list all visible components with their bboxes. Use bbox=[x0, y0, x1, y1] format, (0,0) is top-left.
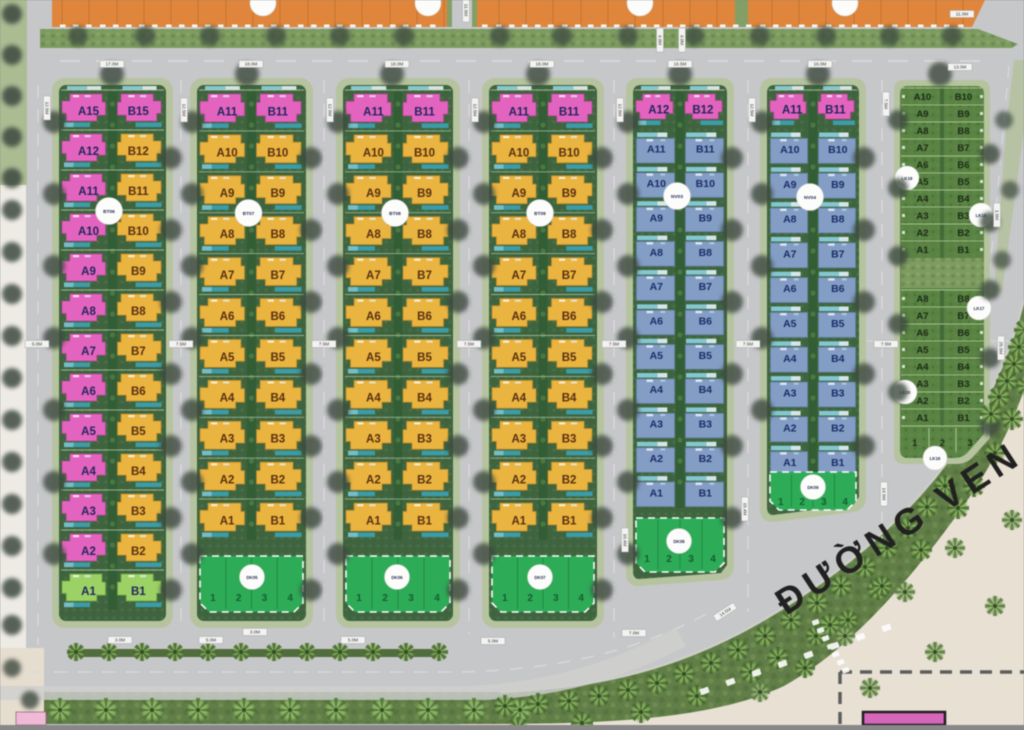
svg-text:1: 1 bbox=[644, 554, 650, 565]
svg-text:25.5M: 25.5M bbox=[998, 342, 1003, 355]
svg-text:1: 1 bbox=[210, 593, 216, 604]
svg-text:4: 4 bbox=[434, 593, 440, 604]
svg-text:4.0M: 4.0M bbox=[657, 35, 662, 45]
svg-text:B3: B3 bbox=[270, 434, 285, 446]
svg-text:A12: A12 bbox=[648, 105, 669, 117]
svg-text:B2: B2 bbox=[957, 228, 969, 239]
svg-text:B1: B1 bbox=[831, 457, 845, 469]
svg-text:B6: B6 bbox=[699, 316, 713, 328]
svg-text:3.0M: 3.0M bbox=[115, 638, 125, 643]
svg-text:3: 3 bbox=[553, 593, 559, 604]
svg-text:BT07: BT07 bbox=[243, 211, 255, 217]
svg-text:4: 4 bbox=[842, 497, 848, 508]
svg-text:B12: B12 bbox=[128, 146, 149, 158]
svg-text:7.5M: 7.5M bbox=[176, 342, 186, 347]
svg-text:5.0M: 5.0M bbox=[206, 638, 216, 643]
svg-text:16.5M: 16.5M bbox=[674, 62, 687, 67]
svg-text:10.4M: 10.4M bbox=[622, 534, 627, 547]
svg-text:A5: A5 bbox=[220, 352, 235, 364]
svg-text:14.5M: 14.5M bbox=[881, 488, 886, 501]
svg-text:7.0M: 7.0M bbox=[629, 631, 639, 636]
svg-text:B11: B11 bbox=[559, 106, 580, 118]
svg-text:A2: A2 bbox=[366, 475, 381, 487]
svg-text:1: 1 bbox=[502, 593, 508, 604]
svg-text:B1: B1 bbox=[699, 487, 713, 499]
svg-text:A7: A7 bbox=[650, 281, 664, 293]
svg-text:A6: A6 bbox=[511, 311, 526, 323]
svg-text:3: 3 bbox=[821, 497, 827, 508]
svg-text:2: 2 bbox=[236, 593, 242, 604]
svg-text:A12: A12 bbox=[78, 146, 99, 158]
svg-text:B6: B6 bbox=[831, 283, 845, 295]
svg-text:B7: B7 bbox=[699, 281, 713, 293]
svg-text:12.5M: 12.5M bbox=[617, 104, 622, 117]
svg-text:2: 2 bbox=[382, 593, 388, 604]
svg-text:1: 1 bbox=[912, 438, 917, 448]
svg-text:A1: A1 bbox=[366, 516, 381, 528]
svg-text:B3: B3 bbox=[417, 434, 432, 446]
svg-text:B10: B10 bbox=[414, 147, 435, 159]
svg-text:4: 4 bbox=[287, 593, 293, 604]
svg-text:18.0M: 18.0M bbox=[245, 62, 258, 67]
svg-text:A6: A6 bbox=[366, 311, 381, 323]
svg-text:B4: B4 bbox=[957, 362, 970, 373]
svg-text:A7: A7 bbox=[366, 270, 381, 282]
svg-text:11.0M: 11.0M bbox=[956, 12, 969, 17]
svg-text:18.0M: 18.0M bbox=[391, 62, 404, 67]
svg-text:A8: A8 bbox=[916, 294, 928, 305]
svg-text:A11: A11 bbox=[782, 105, 803, 117]
svg-text:A3: A3 bbox=[783, 388, 797, 400]
svg-text:B3: B3 bbox=[699, 419, 713, 431]
svg-text:A5: A5 bbox=[81, 426, 96, 438]
svg-text:B5: B5 bbox=[831, 318, 845, 330]
svg-text:B4: B4 bbox=[699, 384, 713, 396]
svg-text:5.0M: 5.0M bbox=[32, 342, 42, 347]
svg-text:A3: A3 bbox=[366, 434, 381, 446]
svg-text:7.5M: 7.5M bbox=[319, 342, 329, 347]
svg-text:B5: B5 bbox=[562, 352, 577, 364]
svg-text:1.5M: 1.5M bbox=[994, 210, 999, 220]
svg-text:A8: A8 bbox=[511, 229, 526, 241]
svg-text:4.0M: 4.0M bbox=[679, 35, 684, 45]
svg-text:B11: B11 bbox=[128, 186, 149, 198]
svg-text:A7: A7 bbox=[511, 270, 526, 282]
svg-text:A8: A8 bbox=[366, 229, 381, 241]
svg-text:B7: B7 bbox=[270, 270, 285, 282]
svg-text:A2: A2 bbox=[81, 546, 96, 558]
svg-text:B3: B3 bbox=[957, 211, 969, 222]
svg-text:B4: B4 bbox=[417, 393, 432, 405]
svg-text:A4: A4 bbox=[81, 466, 96, 478]
svg-text:18.0M: 18.0M bbox=[536, 62, 549, 67]
svg-text:A8: A8 bbox=[783, 214, 797, 226]
svg-text:A1: A1 bbox=[916, 413, 929, 424]
svg-text:17.0M: 17.0M bbox=[106, 62, 119, 67]
svg-text:B10: B10 bbox=[696, 178, 715, 190]
svg-text:B8: B8 bbox=[831, 214, 845, 226]
svg-text:A6: A6 bbox=[81, 386, 96, 398]
svg-text:B1: B1 bbox=[270, 516, 285, 528]
svg-text:12.5M: 12.5M bbox=[327, 104, 332, 117]
svg-text:A3: A3 bbox=[220, 434, 235, 446]
svg-text:2: 2 bbox=[799, 497, 805, 508]
svg-text:A9: A9 bbox=[783, 179, 797, 191]
svg-text:B9: B9 bbox=[957, 109, 969, 120]
svg-text:A11: A11 bbox=[78, 186, 99, 198]
svg-text:A5: A5 bbox=[783, 318, 797, 330]
svg-text:3.0M: 3.0M bbox=[250, 630, 260, 635]
svg-text:B9: B9 bbox=[131, 266, 146, 278]
svg-text:A10: A10 bbox=[217, 147, 238, 159]
svg-text:A7: A7 bbox=[783, 248, 797, 260]
svg-text:B2: B2 bbox=[562, 475, 577, 487]
svg-text:B10: B10 bbox=[559, 147, 580, 159]
svg-text:A1: A1 bbox=[916, 245, 929, 256]
svg-text:B7: B7 bbox=[562, 270, 577, 282]
svg-text:A15: A15 bbox=[78, 106, 100, 118]
svg-text:A1: A1 bbox=[81, 586, 96, 598]
svg-text:A2: A2 bbox=[783, 422, 797, 434]
svg-text:A5: A5 bbox=[650, 350, 664, 362]
svg-text:B2: B2 bbox=[417, 475, 432, 487]
svg-text:7.5M: 7.5M bbox=[743, 342, 753, 347]
svg-text:A6: A6 bbox=[220, 311, 235, 323]
svg-text:A7: A7 bbox=[220, 270, 235, 282]
svg-text:B3: B3 bbox=[562, 434, 577, 446]
svg-text:3: 3 bbox=[262, 593, 268, 604]
svg-text:B5: B5 bbox=[270, 352, 285, 364]
svg-text:B8: B8 bbox=[270, 229, 285, 241]
svg-text:B1: B1 bbox=[957, 413, 970, 424]
svg-text:A4: A4 bbox=[511, 393, 526, 405]
svg-text:B6: B6 bbox=[131, 386, 146, 398]
svg-text:12.5M: 12.5M bbox=[749, 104, 754, 117]
svg-text:B9: B9 bbox=[699, 212, 713, 224]
svg-text:B10: B10 bbox=[828, 144, 847, 156]
svg-text:A3: A3 bbox=[81, 506, 96, 518]
svg-text:A4: A4 bbox=[366, 393, 381, 405]
svg-text:DK09: DK09 bbox=[807, 485, 819, 490]
svg-text:NV03: NV03 bbox=[671, 194, 683, 200]
svg-text:A9: A9 bbox=[916, 109, 928, 120]
svg-text:A6: A6 bbox=[916, 328, 928, 339]
svg-text:12.5M: 12.5M bbox=[181, 104, 186, 117]
svg-text:B2: B2 bbox=[270, 475, 285, 487]
svg-text:12.5M: 12.5M bbox=[472, 104, 477, 117]
svg-text:A4: A4 bbox=[220, 393, 235, 405]
svg-text:A3: A3 bbox=[916, 379, 928, 390]
svg-text:B4: B4 bbox=[562, 393, 577, 405]
svg-text:B8: B8 bbox=[562, 229, 577, 241]
svg-text:B3: B3 bbox=[957, 379, 969, 390]
svg-text:B7: B7 bbox=[831, 248, 845, 260]
svg-text:B5: B5 bbox=[957, 345, 970, 356]
svg-text:B5: B5 bbox=[131, 426, 146, 438]
svg-text:DK07: DK07 bbox=[534, 575, 546, 580]
svg-text:3: 3 bbox=[688, 554, 694, 565]
svg-text:A11: A11 bbox=[217, 106, 238, 118]
svg-text:B9: B9 bbox=[831, 179, 845, 191]
svg-text:B6: B6 bbox=[562, 311, 577, 323]
svg-text:B4: B4 bbox=[831, 353, 845, 365]
svg-text:A10: A10 bbox=[647, 178, 666, 190]
svg-text:A5: A5 bbox=[366, 352, 381, 364]
svg-text:B9: B9 bbox=[562, 188, 577, 200]
svg-text:A11: A11 bbox=[509, 106, 530, 118]
svg-text:A1: A1 bbox=[783, 457, 797, 469]
svg-text:A2: A2 bbox=[220, 475, 235, 487]
svg-text:A9: A9 bbox=[366, 188, 381, 200]
svg-text:B12: B12 bbox=[692, 105, 713, 117]
svg-text:B11: B11 bbox=[414, 106, 435, 118]
svg-text:4: 4 bbox=[710, 554, 716, 565]
svg-text:B10: B10 bbox=[128, 226, 149, 238]
svg-text:3: 3 bbox=[967, 438, 972, 448]
svg-text:BT09: BT09 bbox=[534, 211, 546, 217]
svg-text:B6: B6 bbox=[957, 328, 969, 339]
svg-text:BT08: BT08 bbox=[389, 211, 401, 217]
svg-text:7.5M: 7.5M bbox=[881, 342, 891, 347]
svg-text:11.5M: 11.5M bbox=[463, 4, 468, 17]
svg-text:2: 2 bbox=[940, 438, 945, 448]
svg-text:A4: A4 bbox=[916, 194, 929, 205]
svg-text:3: 3 bbox=[408, 593, 414, 604]
svg-text:B2: B2 bbox=[831, 422, 845, 434]
svg-text:B8: B8 bbox=[699, 247, 713, 259]
svg-text:B15: B15 bbox=[128, 106, 150, 118]
svg-text:B11: B11 bbox=[696, 144, 715, 156]
svg-text:B10: B10 bbox=[267, 147, 288, 159]
svg-text:B3: B3 bbox=[131, 506, 146, 518]
svg-text:B1: B1 bbox=[417, 516, 432, 528]
svg-text:13.0M: 13.0M bbox=[954, 65, 967, 70]
svg-text:A11: A11 bbox=[363, 106, 384, 118]
svg-text:A1: A1 bbox=[511, 516, 526, 528]
svg-text:LK17: LK17 bbox=[974, 306, 985, 311]
svg-text:NV04: NV04 bbox=[804, 195, 816, 201]
svg-text:A9: A9 bbox=[220, 188, 235, 200]
svg-text:A8: A8 bbox=[81, 306, 96, 318]
svg-text:A4: A4 bbox=[650, 384, 664, 396]
svg-text:B5: B5 bbox=[957, 177, 970, 188]
svg-text:B6: B6 bbox=[417, 311, 432, 323]
svg-text:B9: B9 bbox=[417, 188, 432, 200]
svg-text:B7: B7 bbox=[131, 346, 146, 358]
svg-text:B8: B8 bbox=[417, 229, 432, 241]
svg-text:B2: B2 bbox=[131, 546, 146, 558]
svg-text:A7: A7 bbox=[916, 311, 928, 322]
svg-text:A6: A6 bbox=[650, 316, 664, 328]
svg-text:B7: B7 bbox=[957, 143, 969, 154]
svg-text:A9: A9 bbox=[650, 212, 664, 224]
svg-text:7.5M: 7.5M bbox=[464, 342, 474, 347]
svg-text:B3: B3 bbox=[831, 388, 845, 400]
svg-text:A6: A6 bbox=[916, 160, 928, 171]
svg-text:LK16: LK16 bbox=[930, 456, 941, 461]
svg-text:B2: B2 bbox=[957, 396, 969, 407]
svg-text:B1: B1 bbox=[562, 516, 577, 528]
svg-text:A4: A4 bbox=[783, 353, 797, 365]
svg-text:A10: A10 bbox=[363, 147, 384, 159]
svg-text:B9: B9 bbox=[270, 188, 285, 200]
svg-text:B5: B5 bbox=[417, 352, 432, 364]
svg-text:B7: B7 bbox=[417, 270, 432, 282]
svg-text:B4: B4 bbox=[957, 194, 970, 205]
svg-text:2: 2 bbox=[527, 593, 533, 604]
svg-text:B4: B4 bbox=[131, 466, 146, 478]
svg-text:B8: B8 bbox=[957, 126, 969, 137]
svg-text:BT06: BT06 bbox=[103, 209, 115, 215]
svg-text:2: 2 bbox=[666, 554, 672, 565]
svg-text:A1: A1 bbox=[220, 516, 235, 528]
svg-text:A9: A9 bbox=[511, 188, 526, 200]
svg-text:16.0M: 16.0M bbox=[814, 62, 827, 67]
svg-text:12.5M: 12.5M bbox=[44, 102, 49, 115]
svg-text:A5: A5 bbox=[511, 352, 526, 364]
svg-text:A2: A2 bbox=[650, 453, 664, 465]
svg-text:5.0M: 5.0M bbox=[488, 639, 498, 644]
svg-text:A3: A3 bbox=[650, 419, 664, 431]
svg-text:A5: A5 bbox=[916, 345, 929, 356]
svg-text:A10: A10 bbox=[78, 226, 99, 238]
svg-text:B11: B11 bbox=[268, 106, 289, 118]
svg-text:A11: A11 bbox=[647, 144, 666, 156]
svg-text:B10: B10 bbox=[955, 92, 972, 103]
svg-text:A10: A10 bbox=[914, 92, 931, 103]
svg-text:B1: B1 bbox=[957, 245, 970, 256]
svg-text:A1: A1 bbox=[650, 487, 664, 499]
svg-text:A6: A6 bbox=[783, 283, 797, 295]
svg-text:A7: A7 bbox=[81, 346, 96, 358]
svg-text:DK06: DK06 bbox=[391, 575, 403, 580]
svg-text:B11: B11 bbox=[825, 105, 846, 117]
svg-text:A10: A10 bbox=[508, 147, 529, 159]
svg-text:B5: B5 bbox=[699, 350, 713, 362]
svg-text:A8: A8 bbox=[916, 126, 928, 137]
svg-text:A2: A2 bbox=[916, 396, 928, 407]
svg-text:A8: A8 bbox=[650, 247, 664, 259]
svg-text:B4: B4 bbox=[270, 393, 285, 405]
svg-text:1: 1 bbox=[778, 497, 784, 508]
svg-text:A3: A3 bbox=[511, 434, 526, 446]
svg-text:5.0M: 5.0M bbox=[348, 638, 358, 643]
svg-text:A2: A2 bbox=[511, 475, 526, 487]
svg-text:15.4M: 15.4M bbox=[742, 503, 747, 516]
svg-text:B6: B6 bbox=[270, 311, 285, 323]
svg-text:B1: B1 bbox=[131, 586, 146, 598]
svg-text:A7: A7 bbox=[916, 143, 928, 154]
svg-text:4: 4 bbox=[578, 593, 584, 604]
svg-text:1: 1 bbox=[356, 593, 362, 604]
svg-text:DK08: DK08 bbox=[673, 539, 685, 544]
svg-text:A4: A4 bbox=[916, 362, 929, 373]
svg-text:A9: A9 bbox=[81, 266, 96, 278]
svg-text:B2: B2 bbox=[699, 453, 713, 465]
svg-text:B8: B8 bbox=[131, 306, 146, 318]
svg-text:7.5M: 7.5M bbox=[883, 99, 888, 109]
svg-text:7.5M: 7.5M bbox=[609, 342, 619, 347]
svg-text:A3: A3 bbox=[916, 211, 928, 222]
svg-text:A8: A8 bbox=[220, 229, 235, 241]
svg-text:B6: B6 bbox=[957, 160, 969, 171]
svg-text:DK05: DK05 bbox=[246, 575, 258, 580]
svg-text:A10: A10 bbox=[780, 144, 799, 156]
svg-text:A2: A2 bbox=[916, 228, 928, 239]
